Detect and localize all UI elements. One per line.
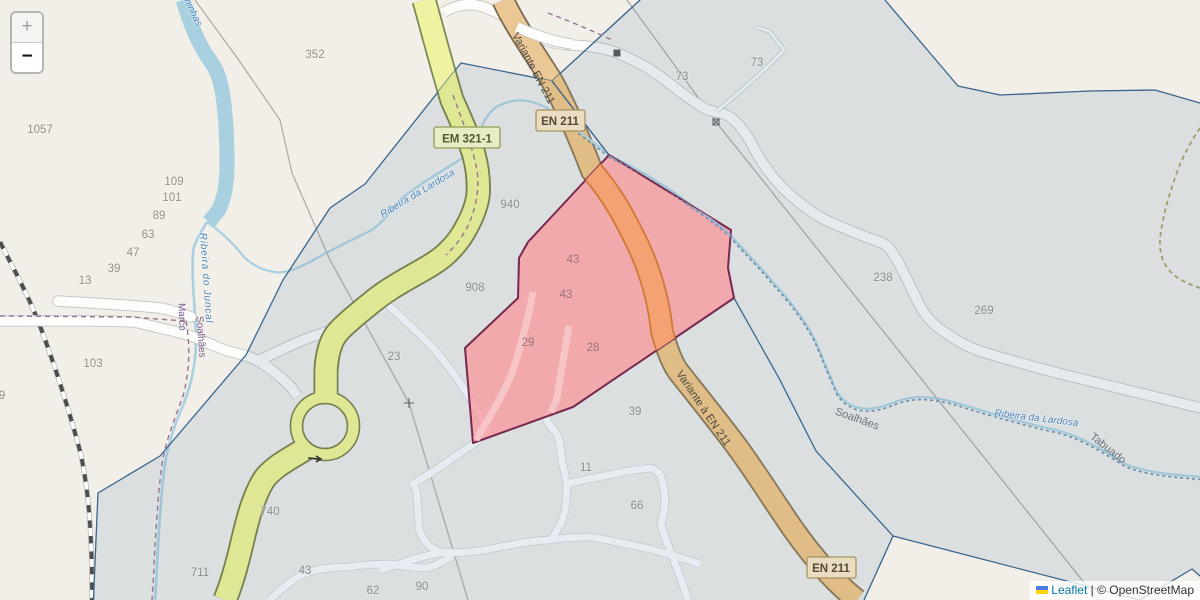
svg-text:29: 29 <box>522 337 535 349</box>
svg-text:9: 9 <box>0 390 5 402</box>
svg-text:90: 90 <box>416 581 429 593</box>
svg-text:908: 908 <box>465 282 484 294</box>
svg-text:740: 740 <box>260 506 279 518</box>
svg-text:103: 103 <box>83 358 102 370</box>
svg-text:940: 940 <box>500 199 519 211</box>
svg-text:39: 39 <box>629 406 642 418</box>
svg-text:28: 28 <box>587 342 600 354</box>
svg-text:711: 711 <box>191 567 209 579</box>
svg-text:Marco: Marco <box>176 303 188 332</box>
svg-text:352: 352 <box>305 49 324 61</box>
svg-text:73: 73 <box>751 57 764 69</box>
svg-text:89: 89 <box>153 210 166 222</box>
svg-text:73: 73 <box>676 71 689 83</box>
svg-text:EN 211: EN 211 <box>812 563 850 575</box>
svg-text:269: 269 <box>974 305 993 317</box>
svg-text:43: 43 <box>560 289 573 301</box>
svg-text:43: 43 <box>567 254 580 266</box>
svg-text:13: 13 <box>79 275 92 287</box>
svg-text:43: 43 <box>299 565 312 577</box>
svg-text:109: 109 <box>164 176 183 188</box>
svg-text:39: 39 <box>108 263 121 275</box>
svg-text:62: 62 <box>367 585 380 597</box>
svg-text:101: 101 <box>162 192 181 204</box>
svg-text:238: 238 <box>873 272 892 284</box>
svg-text:EM 321-1: EM 321-1 <box>442 134 492 146</box>
svg-text:1057: 1057 <box>27 124 53 136</box>
svg-text:11: 11 <box>580 462 592 474</box>
svg-text:EN 211: EN 211 <box>541 116 579 128</box>
svg-text:47: 47 <box>127 247 140 259</box>
svg-text:66: 66 <box>631 500 644 512</box>
svg-text:63: 63 <box>142 229 155 241</box>
svg-text:23: 23 <box>388 351 401 363</box>
